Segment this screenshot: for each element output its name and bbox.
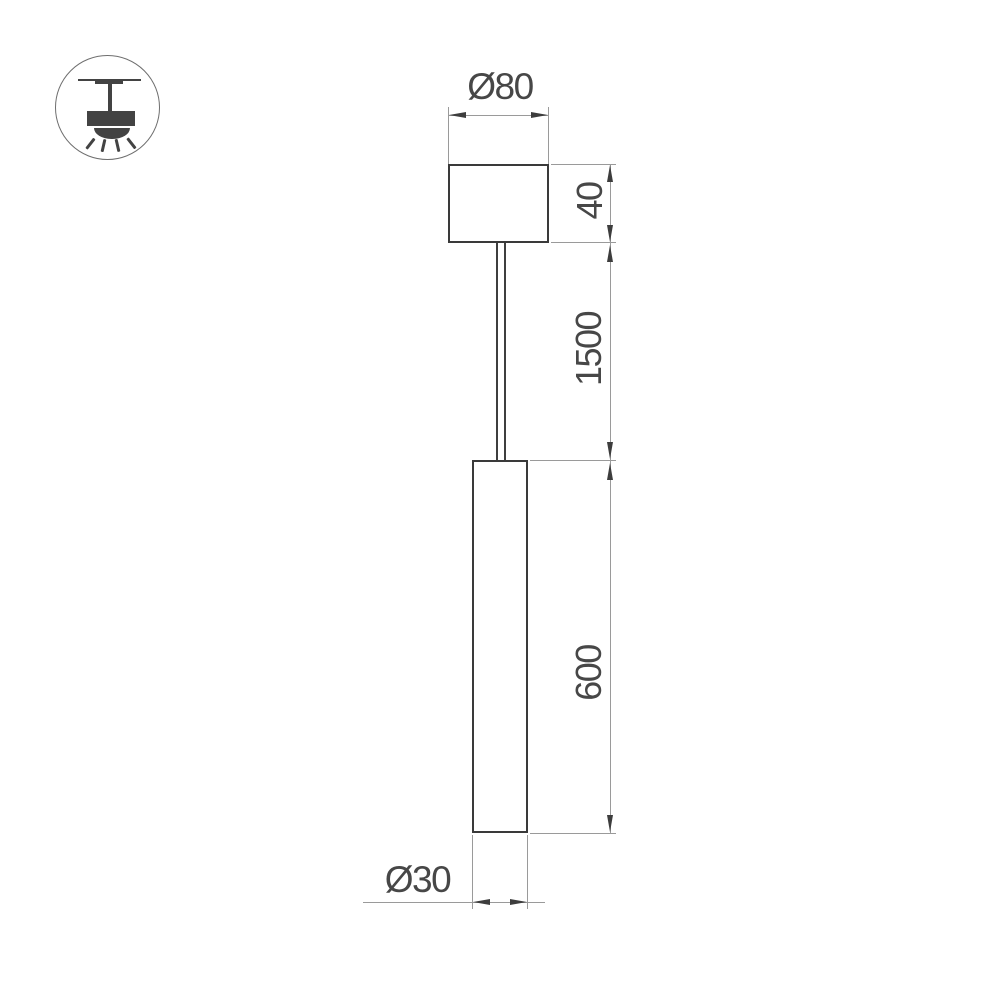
canopy-height-label: 40 [570,161,610,241]
tube-length-label: 600 [569,623,609,723]
canopy-body [448,164,549,243]
extension-line [530,833,616,834]
arrowhead-right-icon [531,112,548,118]
arrowhead-up-icon [607,245,613,262]
ceiling-pendant-mount-icon [55,55,161,161]
tube-diameter-label: Ø30 [367,866,468,894]
suspension-length-label: 1500 [569,289,609,409]
arrowhead-down-icon [607,815,613,832]
suspension-wire-right-edge [504,243,506,461]
arrowhead-down-icon [607,442,613,459]
lamp-tube-body [472,460,528,833]
technical-drawing-page: Ø80 40 1500 600 Ø30 [0,0,1000,1000]
extension-line [530,460,616,461]
icon-lamp-head [87,111,135,126]
suspension-wire-left-edge [496,243,498,461]
icon-stem [108,82,112,111]
arrowhead-left-icon [473,899,490,905]
arrowhead-up-icon [607,463,613,480]
arrowhead-left-icon [449,112,466,118]
arrowhead-right-icon [510,899,527,905]
canopy-diameter-label: Ø80 [450,73,550,101]
extension-line [527,835,528,909]
